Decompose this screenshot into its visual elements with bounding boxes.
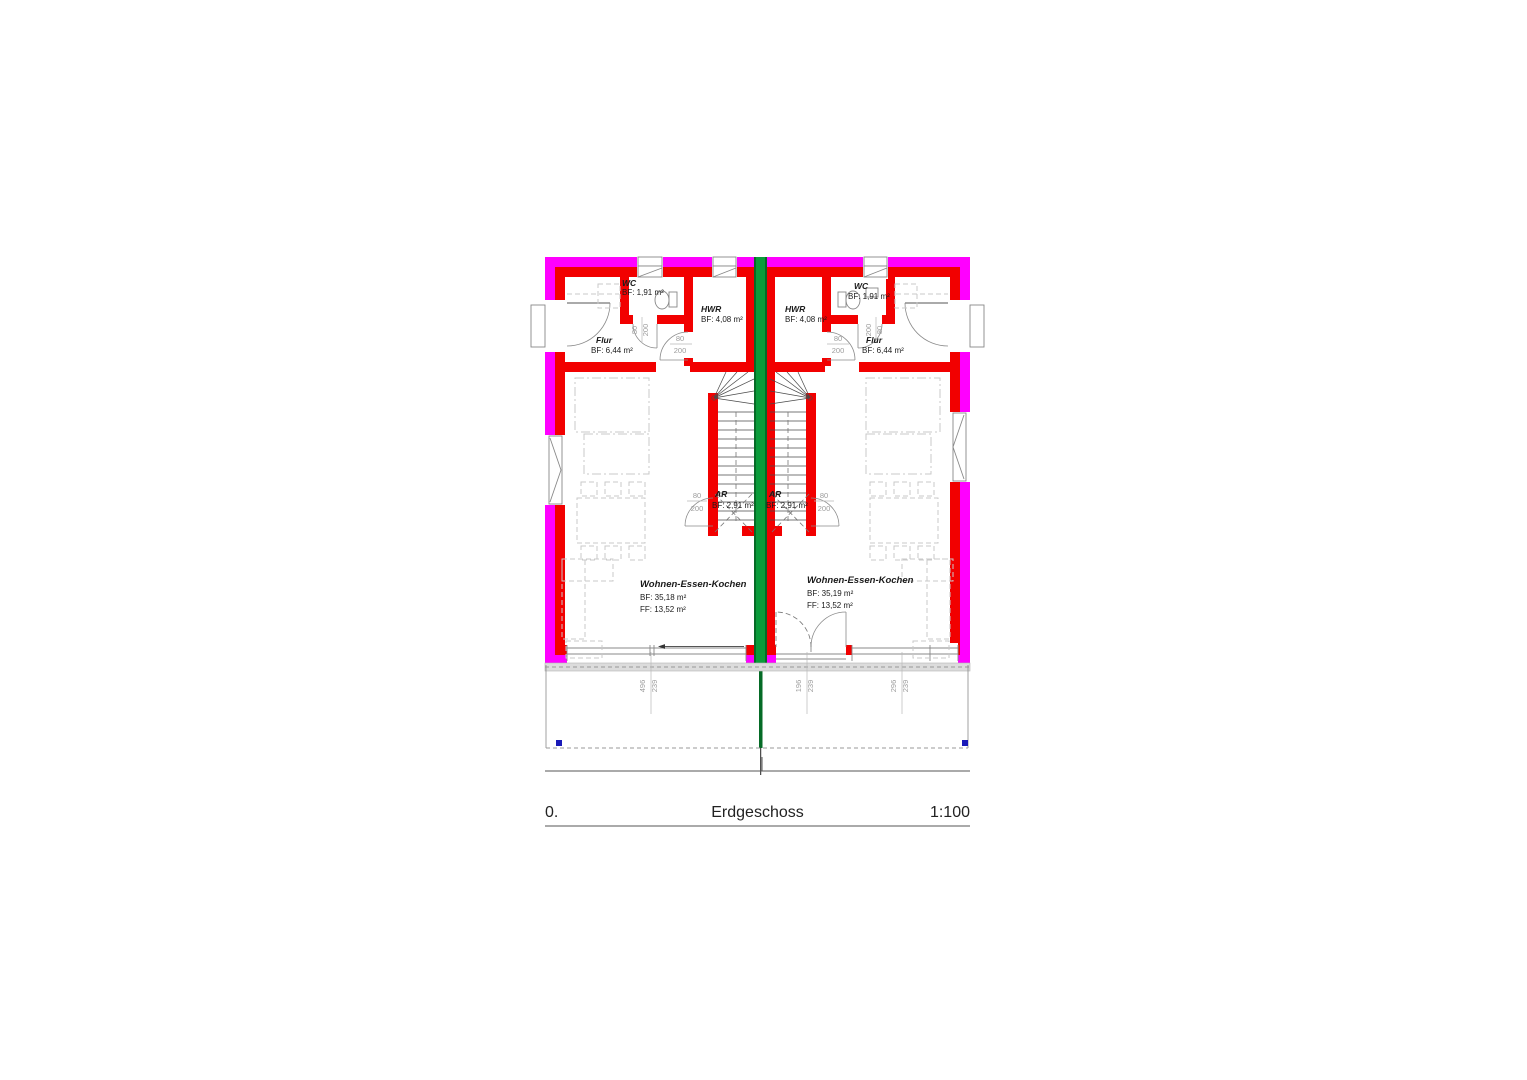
kitchen-counter xyxy=(575,378,649,432)
terrace-marker-icon xyxy=(962,740,968,746)
room-area-flur-right: BF: 6,44 m² xyxy=(862,346,904,356)
room-label-wek-left: Wohnen-Essen-Kochen xyxy=(640,580,746,590)
chair xyxy=(918,482,934,496)
window-icon xyxy=(713,257,736,277)
terrace-outline xyxy=(546,665,968,748)
wardrobe xyxy=(598,284,620,308)
dim-door-w: 80 xyxy=(676,334,684,343)
drawing-scale: 1:100 xyxy=(545,804,970,822)
sofa xyxy=(562,559,585,639)
room-label-wek-right: Wohnen-Essen-Kochen xyxy=(807,576,913,586)
dim-height: 239 xyxy=(650,680,659,693)
room-area-ff-wek-right: FF: 13,52 m² xyxy=(807,601,853,611)
dim-door-h: 200 xyxy=(832,346,845,355)
terrace-marker-icon xyxy=(556,740,562,746)
dining-table xyxy=(577,498,645,543)
room-label-ar-right: AR xyxy=(769,489,781,499)
dim-door-h: 200 xyxy=(818,504,831,513)
floor-plan-drawing: 496 239 196 239 296 239 80 200 80 200 80… xyxy=(0,0,1527,1080)
window-icon xyxy=(864,257,887,277)
chair xyxy=(894,482,910,496)
chair xyxy=(870,482,886,496)
chair xyxy=(629,482,645,496)
room-area-ar-right: BF: 2,91 m² xyxy=(766,501,808,511)
room-label-wc-left: WC xyxy=(622,278,636,288)
room-area-hwr-right: BF: 4,08 m² xyxy=(785,315,827,325)
room-label-wc-right: WC xyxy=(854,281,868,291)
room-area-bf-wek-right: BF: 35,19 m² xyxy=(807,589,853,599)
room-area-wc-left: BF: 1,91 m² xyxy=(622,288,664,298)
wardrobe xyxy=(895,284,917,308)
room-label-flur-right: Flur xyxy=(866,335,882,345)
dim-width: 496 xyxy=(638,680,647,693)
kitchen-counter xyxy=(866,378,940,432)
dim-width: 196 xyxy=(794,680,803,693)
dim-door-w: 80 xyxy=(834,334,842,343)
room-area-ff-wek-left: FF: 13,52 m² xyxy=(640,605,686,615)
dim-door-w: 80 xyxy=(820,491,828,500)
floor-plan-page: 496 239 196 239 296 239 80 200 80 200 80… xyxy=(0,0,1527,1080)
chair xyxy=(894,546,910,560)
side-window-right xyxy=(953,413,966,481)
room-label-ar-left: AR xyxy=(715,489,727,499)
chair xyxy=(581,482,597,496)
kitchen-island xyxy=(584,434,649,474)
dim-door-h: 200 xyxy=(691,504,704,513)
chair xyxy=(581,546,597,560)
room-area-hwr-left: BF: 4,08 m² xyxy=(701,315,743,325)
chair xyxy=(605,546,621,560)
dim-door-w: 80 xyxy=(630,326,639,334)
chair xyxy=(918,546,934,560)
kitchen-island xyxy=(866,434,931,474)
room-area-flur-left: BF: 6,44 m² xyxy=(591,346,633,356)
side-window-left xyxy=(549,436,562,504)
room-area-wc-right: BF: 1,91 m² xyxy=(848,292,890,302)
party-wall-green xyxy=(754,257,767,775)
room-label-hwr-right: HWR xyxy=(785,304,805,314)
room-area-ar-left: BF: 2,91 m² xyxy=(712,501,754,511)
dim-door-w: 80 xyxy=(693,491,701,500)
room-label-hwr-left: HWR xyxy=(701,304,721,314)
dining-table xyxy=(870,498,938,543)
chair xyxy=(605,482,621,496)
room-area-bf-wek-left: BF: 35,18 m² xyxy=(640,593,686,603)
chair xyxy=(870,546,886,560)
dim-height: 239 xyxy=(901,680,910,693)
sofa xyxy=(927,559,950,639)
chair xyxy=(629,546,645,560)
dim-door-h: 200 xyxy=(674,346,687,355)
dim-height: 239 xyxy=(806,680,815,693)
room-label-flur-left: Flur xyxy=(596,335,612,345)
window-icon xyxy=(638,257,662,277)
entry-door-right xyxy=(905,303,984,347)
sofa xyxy=(562,559,613,581)
dim-width: 296 xyxy=(889,680,898,693)
